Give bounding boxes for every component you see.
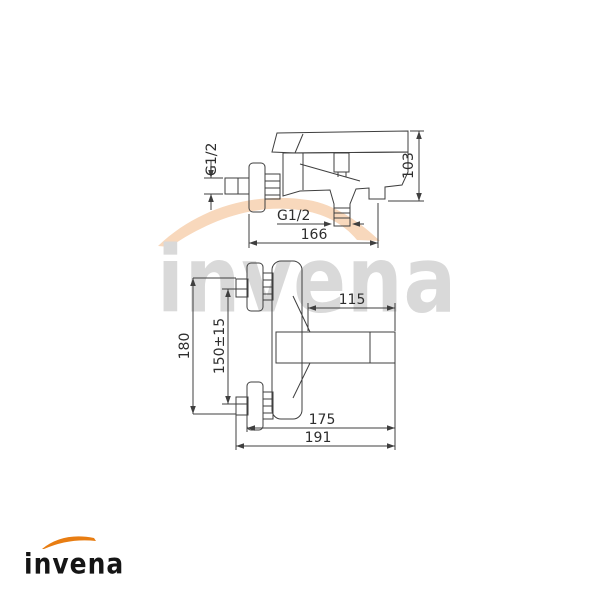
technical-drawing: G1/2 103 G1/2 — [0, 0, 600, 600]
dim-label-inlet-spacing: 150±15 — [212, 318, 228, 374]
dim-label-total-height: 103 — [401, 152, 417, 179]
dim-spout-reach: 115 — [308, 292, 395, 331]
side-view-drawing: G1/2 103 G1/2 — [204, 131, 424, 248]
dim-label-outlet-thread: G1/2 — [277, 208, 310, 224]
dim-label-wall-thread: G1/2 — [204, 143, 220, 176]
dim-label-total-depth-side: 166 — [301, 227, 328, 243]
dim-label-spout-reach: 115 — [339, 292, 366, 308]
dim-total-height: 103 — [388, 131, 424, 201]
dim-label-depth-to-spout: 175 — [309, 412, 336, 428]
dim-label-total-width: 180 — [177, 333, 193, 360]
dim-outlet-thread: G1/2 — [277, 208, 364, 227]
product-dimension-page: invena — [0, 0, 600, 600]
dim-label-total-depth-plan: 191 — [305, 430, 332, 446]
dim-inlet-spacing: 150±15 — [212, 289, 248, 404]
brand-logo: invena — [24, 530, 144, 580]
dim-wall-thread: G1/2 — [204, 143, 223, 210]
brand-logo-text: invena — [24, 549, 124, 578]
top-view-drawing: 115 180 150±15 — [177, 261, 395, 450]
